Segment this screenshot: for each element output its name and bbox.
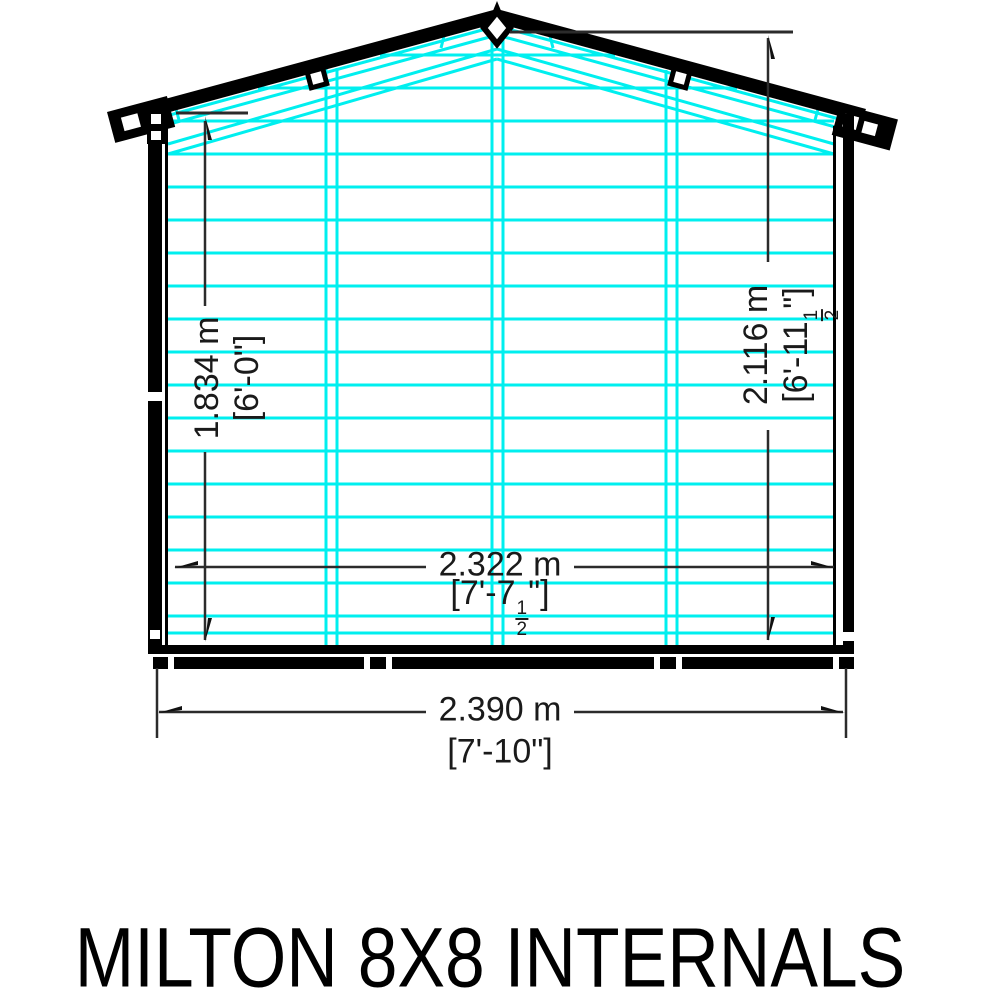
roof-clip-right (670, 68, 690, 88)
fascia-right (832, 104, 898, 150)
shed-elevation-drawing (0, 0, 1000, 1000)
dim-eaves-height-label: 1.834 m [6'-0"] (187, 317, 267, 440)
dim-eaves-height-metric: 1.834 m (187, 317, 227, 440)
dim-ridge-height-label: 2.116 m [6'-1112"] (736, 285, 842, 405)
diagram-canvas: 1.834 m [6'-0"] 2.116 m [6'-1112"] 2.322… (0, 0, 1000, 1000)
fraction: 12 (515, 599, 528, 639)
dim-external-width-imperial: [7'-10"] (447, 733, 553, 770)
right-wall-outer (843, 114, 854, 653)
dim-eaves-height-imperial: [6'-0"] (227, 317, 267, 440)
fraction: 12 (802, 309, 842, 322)
roof-clip-left (307, 68, 327, 88)
dim-internal-width-imperial: [7'-712"] (450, 575, 549, 639)
left-wall-inner (165, 112, 168, 645)
dim-ridge-height-imperial: [6'-1112"] (776, 285, 842, 405)
drawing-title: MILTON 8X8 INTERNALS (75, 910, 906, 1000)
floor-and-bearers (148, 645, 854, 669)
dim-ridge-height-metric: 2.116 m (736, 285, 776, 405)
floor (148, 645, 854, 654)
dim-external-width-metric: 2.390 m (439, 691, 562, 728)
left-wall-top-block-2 (149, 129, 163, 142)
left-wall-top-block-1 (149, 112, 163, 126)
